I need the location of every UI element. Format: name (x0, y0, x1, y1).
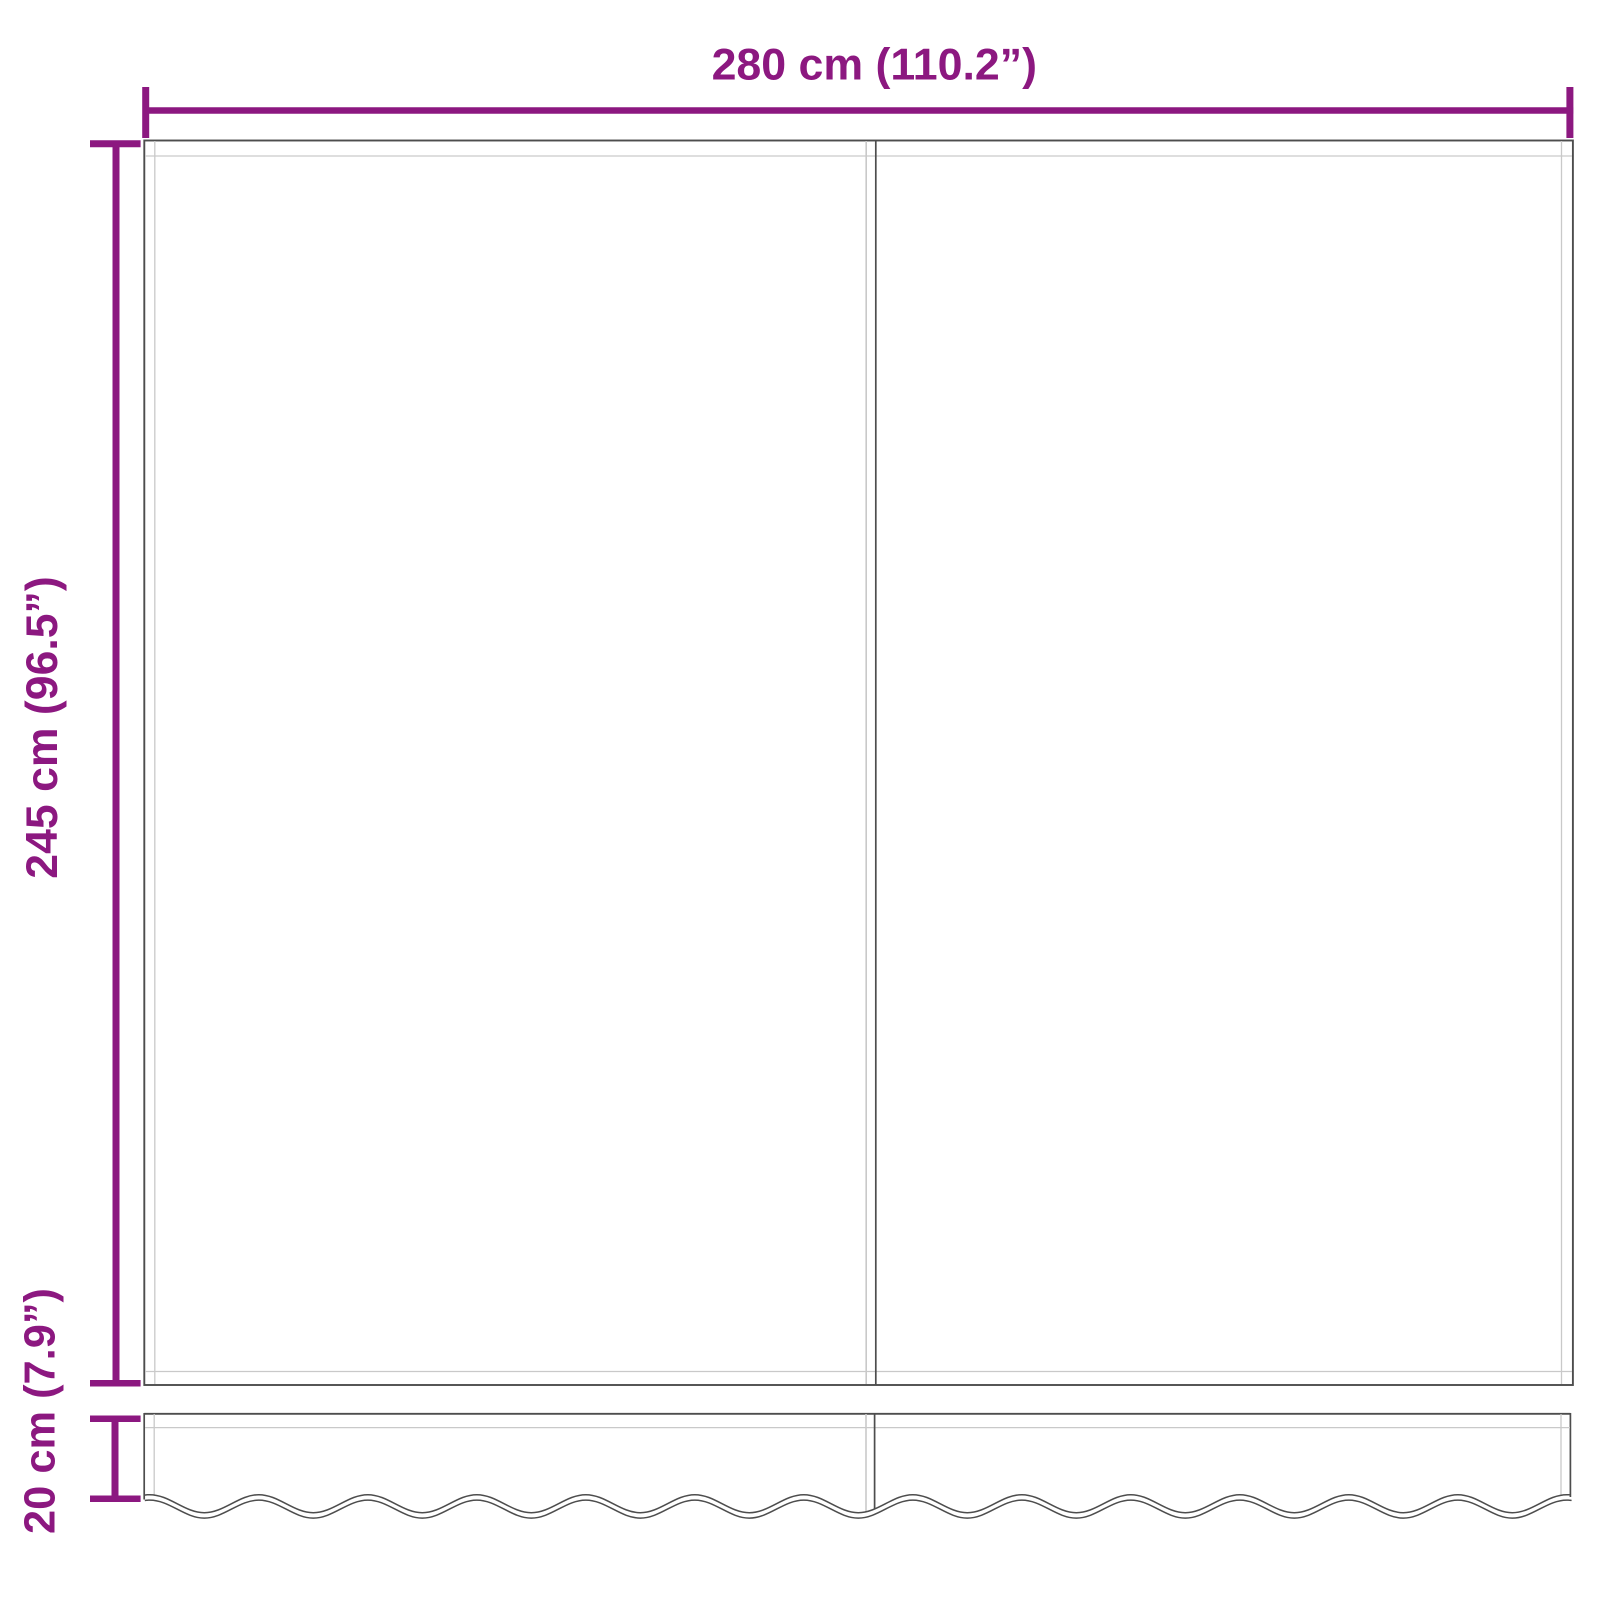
svg-text:280 cm (110.2”): 280 cm (110.2”) (712, 41, 1037, 90)
svg-text:20 cm (7.9”): 20 cm (7.9”) (17, 1288, 65, 1534)
svg-text:245 cm (96.5”): 245 cm (96.5”) (18, 576, 67, 878)
